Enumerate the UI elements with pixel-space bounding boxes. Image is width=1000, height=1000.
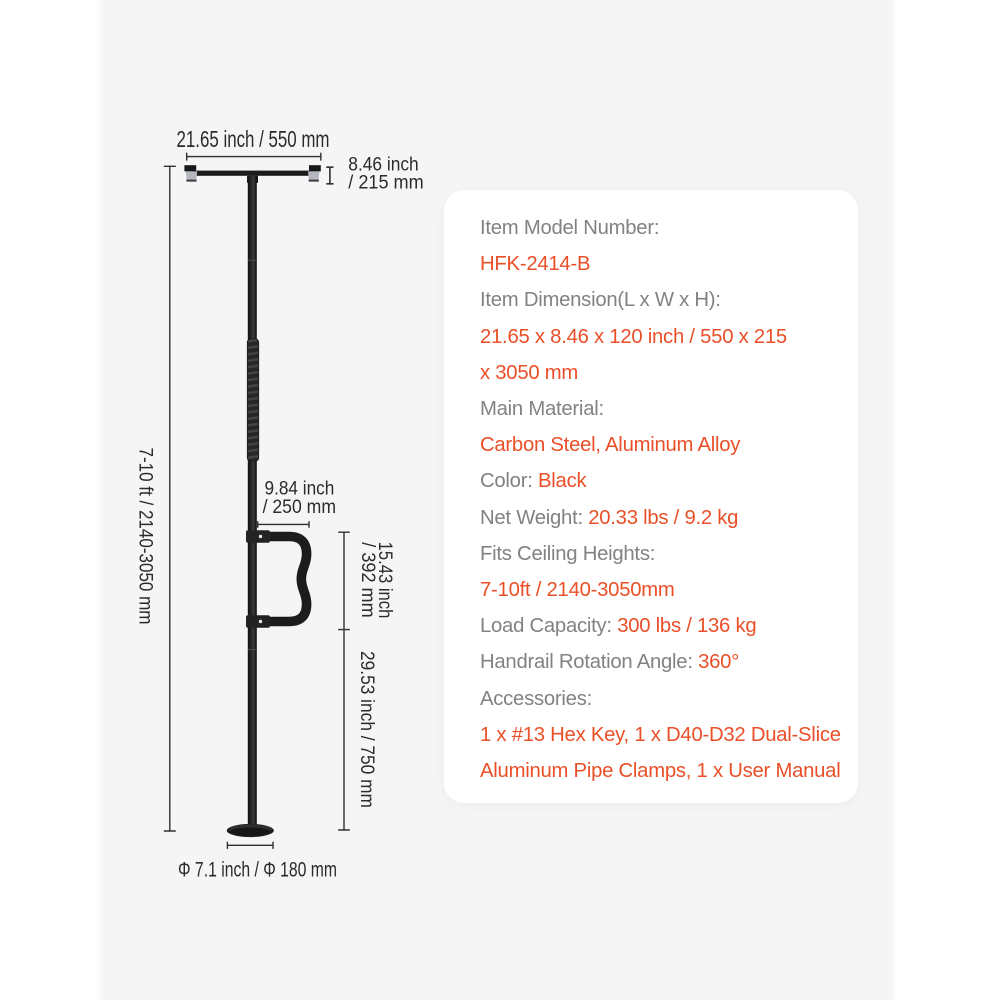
svg-text:/ 392 mm: / 392 mm <box>357 542 378 617</box>
svg-text:7-10 ft / 2140-3050 mm: 7-10 ft / 2140-3050 mm <box>135 448 156 625</box>
svg-text:9.84 inch: 9.84 inch <box>265 478 335 499</box>
svg-text:/ 250 mm: / 250 mm <box>263 497 336 518</box>
svg-text:/ 215 mm: / 215 mm <box>348 173 423 194</box>
svg-text:29.53 inch / 750 mm: 29.53 inch / 750 mm <box>356 651 377 808</box>
svg-text:21.65 inch / 550 mm: 21.65 inch / 550 mm <box>177 126 330 152</box>
svg-text:Φ 7.1 inch / Φ 180 mm: Φ 7.1 inch / Φ 180 mm <box>178 859 337 882</box>
